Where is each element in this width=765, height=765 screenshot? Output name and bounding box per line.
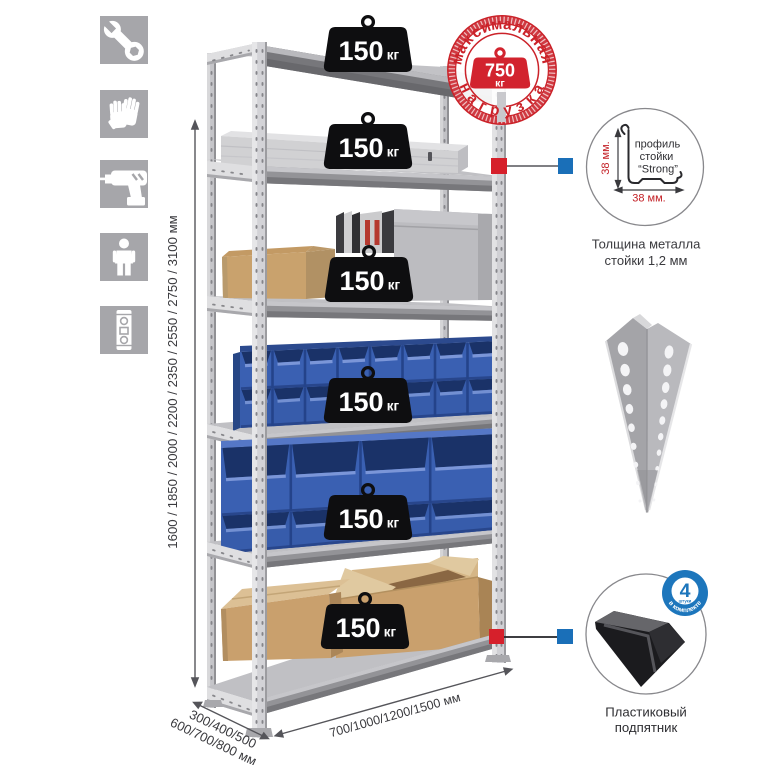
svg-text:150: 150 — [339, 266, 384, 296]
svg-text:стойки 1,2 мм: стойки 1,2 мм — [605, 253, 688, 268]
svg-text:1600 / 1850 / 2000 / 2200 / 23: 1600 / 1850 / 2000 / 2200 / 2350 / 2550 … — [165, 215, 180, 548]
svg-text:кг: кг — [384, 625, 397, 640]
svg-text:Пластиковый: Пластиковый — [605, 705, 687, 720]
svg-text:кг: кг — [387, 399, 400, 414]
svg-text:кг: кг — [387, 48, 400, 63]
svg-text:150: 150 — [338, 133, 383, 163]
svg-text:м: м — [490, 16, 503, 34]
svg-text:150: 150 — [338, 504, 383, 534]
svg-text:38 мм.: 38 мм. — [600, 141, 612, 174]
svg-text:150: 150 — [338, 36, 383, 66]
svg-text:150: 150 — [338, 387, 383, 417]
svg-text:38 мм.: 38 мм. — [632, 193, 665, 205]
svg-text:Толщина металла: Толщина металла — [592, 237, 701, 252]
svg-text:кг: кг — [387, 516, 400, 531]
svg-text:кг: кг — [495, 78, 505, 90]
svg-text:профиль: профиль — [635, 139, 681, 151]
svg-text:подпятник: подпятник — [615, 720, 678, 735]
svg-text:150: 150 — [335, 613, 380, 643]
svg-text:“Strong”: “Strong” — [638, 164, 678, 176]
svg-text:кг: кг — [387, 145, 400, 160]
svg-text:кг: кг — [388, 278, 401, 293]
svg-text:штуки: штуки — [679, 599, 692, 604]
svg-text:стойки: стойки — [640, 151, 674, 163]
